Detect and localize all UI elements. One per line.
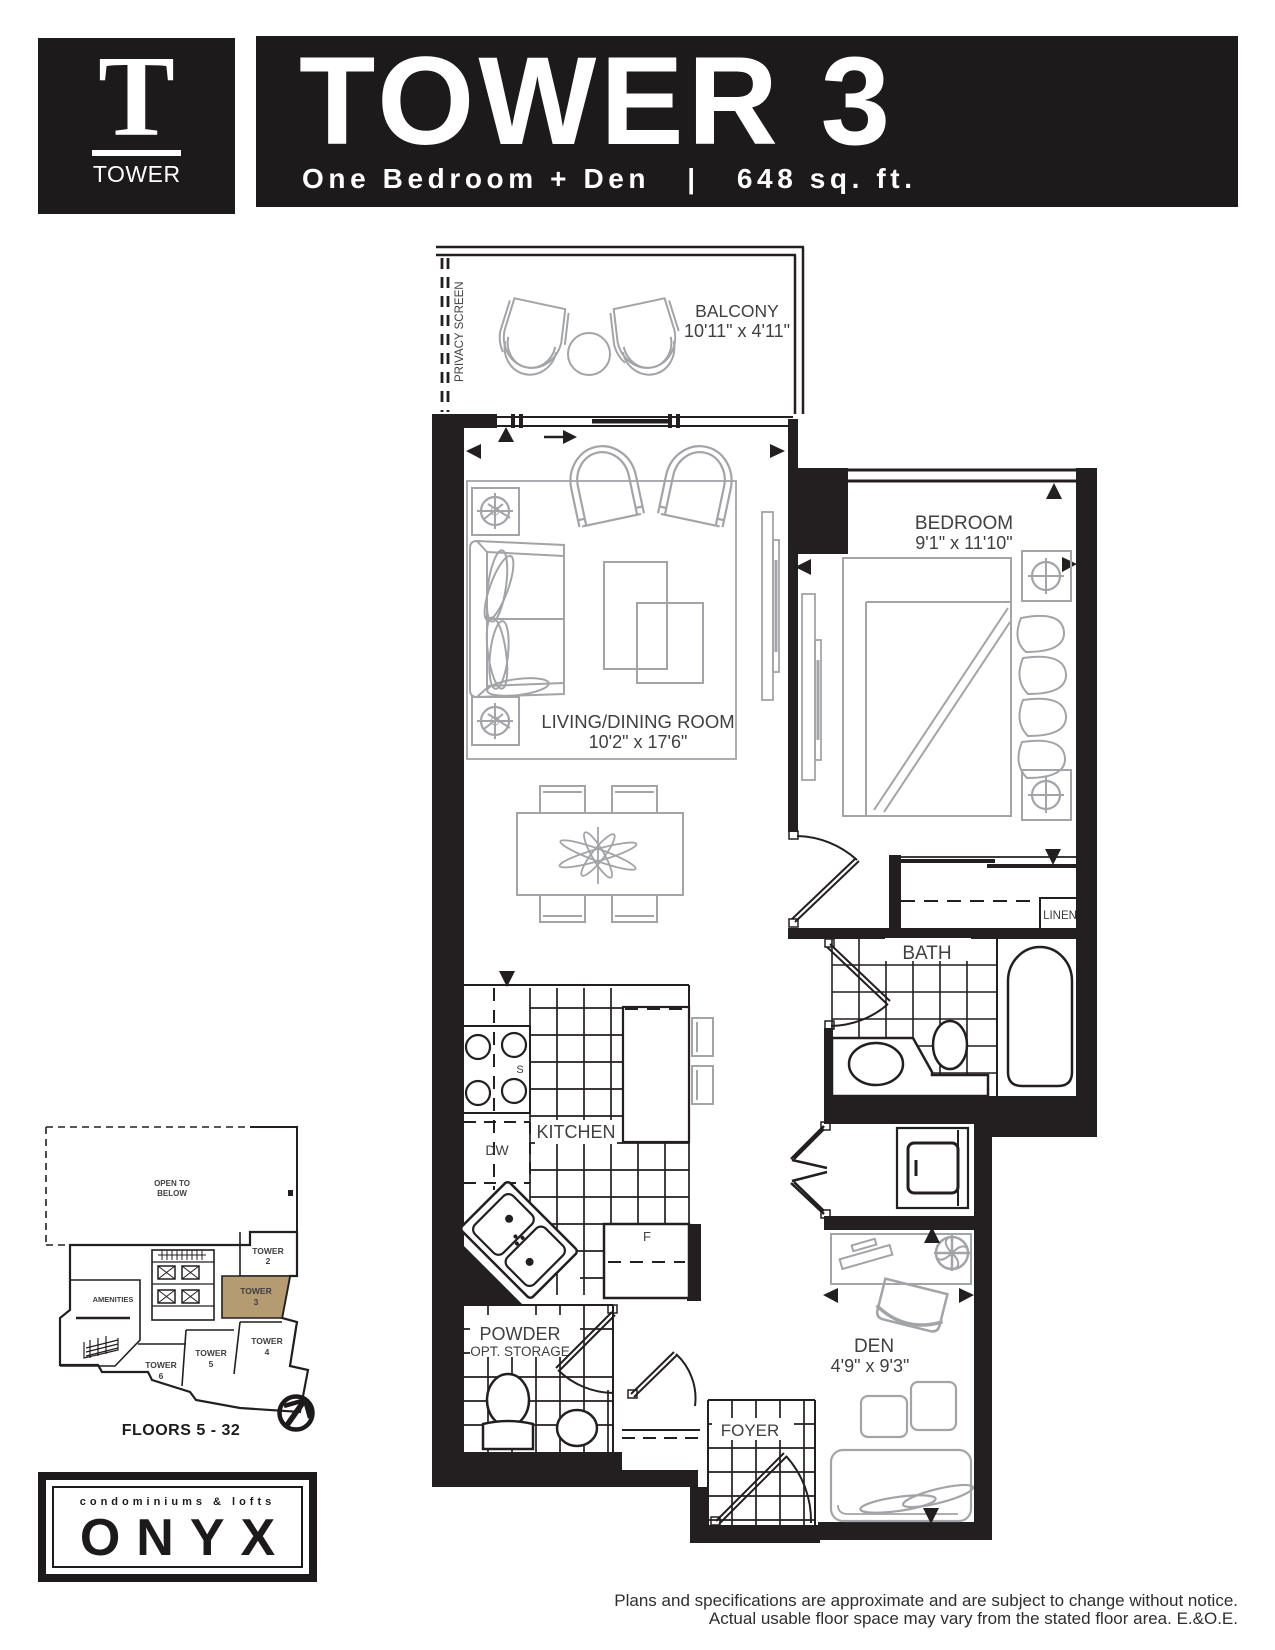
svg-text:TOWER: TOWER bbox=[145, 1360, 176, 1370]
svg-text:3: 3 bbox=[254, 1297, 259, 1307]
svg-text:OPT. STORAGE: OPT. STORAGE bbox=[470, 1344, 570, 1359]
svg-text:LIVING/DINING ROOM: LIVING/DINING ROOM bbox=[541, 711, 734, 732]
svg-text:9'1" x 11'10": 9'1" x 11'10" bbox=[915, 533, 1012, 553]
svg-text:AMENITIES: AMENITIES bbox=[93, 1295, 134, 1304]
svg-text:BELOW: BELOW bbox=[157, 1189, 187, 1198]
svg-text:BALCONY: BALCONY bbox=[695, 301, 779, 321]
svg-text:OPEN TO: OPEN TO bbox=[154, 1179, 190, 1188]
svg-text:BATH: BATH bbox=[902, 943, 951, 964]
svg-text:LINEN: LINEN bbox=[1043, 910, 1077, 922]
svg-text:4'9" x 9'3": 4'9" x 9'3" bbox=[831, 1356, 910, 1376]
svg-text:PRIVACY SCREEN: PRIVACY SCREEN bbox=[454, 281, 466, 382]
svg-text:BEDROOM: BEDROOM bbox=[915, 513, 1013, 534]
svg-text:10'11" x 4'11": 10'11" x 4'11" bbox=[684, 321, 790, 341]
svg-text:10'2" x 17'6": 10'2" x 17'6" bbox=[589, 732, 688, 752]
svg-text:TOWER: TOWER bbox=[240, 1286, 271, 1296]
svg-text:5: 5 bbox=[209, 1359, 214, 1369]
svg-text:TOWER: TOWER bbox=[195, 1348, 226, 1358]
svg-text:DEN: DEN bbox=[854, 1336, 894, 1357]
svg-text:KITCHEN: KITCHEN bbox=[536, 1122, 615, 1142]
svg-text:TOWER: TOWER bbox=[252, 1246, 283, 1256]
svg-text:FOYER: FOYER bbox=[721, 1421, 780, 1440]
svg-text:F: F bbox=[643, 1229, 651, 1244]
svg-text:TOWER: TOWER bbox=[251, 1336, 282, 1346]
svg-text:POWDER: POWDER bbox=[480, 1324, 561, 1344]
svg-text:DW: DW bbox=[485, 1142, 509, 1158]
svg-text:6: 6 bbox=[159, 1371, 164, 1381]
svg-text:4: 4 bbox=[265, 1347, 270, 1357]
svg-text:S: S bbox=[516, 1064, 523, 1076]
svg-text:FLOORS 5 - 32: FLOORS 5 - 32 bbox=[122, 1422, 241, 1439]
svg-text:2: 2 bbox=[266, 1256, 271, 1266]
